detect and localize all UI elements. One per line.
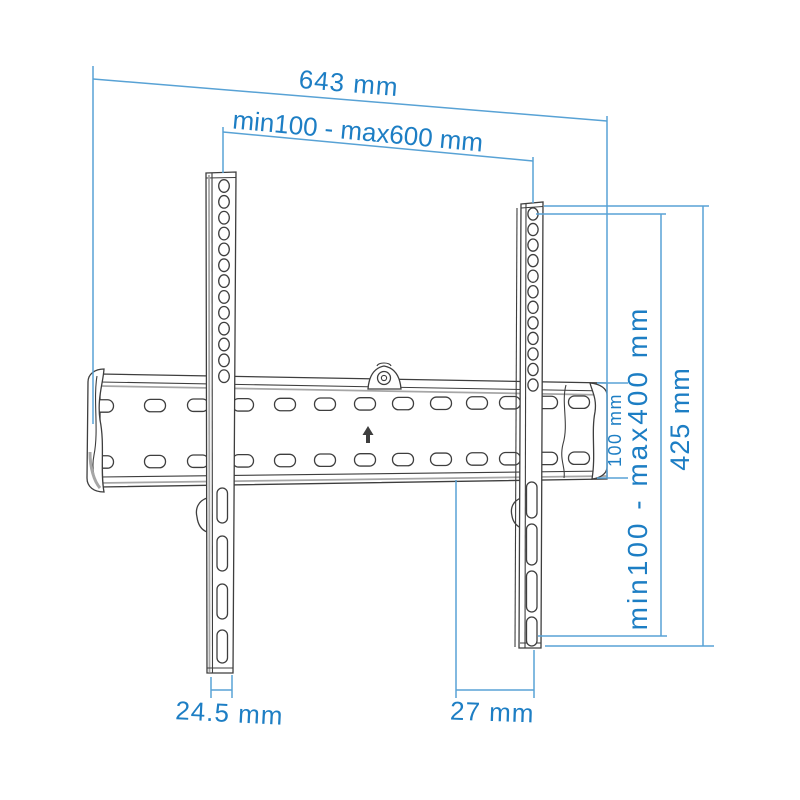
rail-slot	[431, 453, 452, 465]
vesa-hole	[528, 363, 538, 375]
left-arm-hook	[196, 498, 207, 532]
vesa-hole	[528, 379, 538, 391]
overall-height-label: 425 mm	[665, 367, 695, 471]
vesa-hole	[528, 239, 538, 251]
vesa-hole	[528, 223, 538, 235]
rail-slot	[145, 455, 166, 467]
spirit-level-icon	[368, 363, 401, 389]
vesa-hole	[219, 322, 230, 335]
arm-width-label: 24.5 mm	[175, 695, 285, 731]
vesa-hole	[219, 180, 230, 193]
arm-slot	[527, 524, 538, 565]
right-vesa-arm	[511, 202, 543, 648]
rail-slot	[393, 397, 414, 409]
rail-slot	[233, 399, 254, 411]
vesa-hole	[219, 243, 230, 256]
rail-slot	[569, 396, 590, 408]
rail-slot	[431, 397, 452, 409]
vesa-hole	[219, 196, 230, 209]
dimension-vesa-width: min100 - max600 mm	[223, 104, 533, 203]
arm-slot	[527, 571, 538, 612]
vesa-height-label: min100 - max400 mm	[622, 306, 653, 631]
rail-slot	[355, 454, 376, 466]
arm-slot	[527, 617, 538, 646]
left-arm-shading	[209, 175, 210, 672]
rail-slot	[315, 398, 336, 410]
rail-slot	[355, 398, 376, 410]
dimension-arm-width: 24.5 mm	[175, 675, 285, 731]
rail-slot	[500, 453, 521, 465]
vesa-hole	[219, 275, 230, 288]
right-arm-slots	[527, 482, 538, 646]
arm-offset-label: 27 mm	[450, 696, 535, 729]
rail-slot	[275, 454, 296, 466]
arm-slot	[217, 584, 228, 619]
rail-slot	[315, 454, 336, 466]
rail-slot	[188, 455, 209, 467]
vesa-hole	[219, 211, 230, 224]
rail-height-label: 100 mm	[605, 393, 625, 467]
arm-slot	[217, 488, 228, 523]
wall-mount-diagram: 643 mm min100 - max600 mm 425 mm min100 …	[0, 0, 800, 800]
left-arm-top-edge	[206, 178, 236, 179]
arm-slot	[217, 630, 228, 663]
vesa-hole	[528, 301, 538, 313]
vesa-hole	[219, 370, 230, 383]
vesa-hole	[528, 348, 538, 360]
vesa-hole	[219, 259, 230, 272]
rail-slot	[393, 453, 414, 465]
rail-slot	[500, 397, 521, 409]
vesa-hole	[528, 332, 538, 344]
arm-slot	[527, 482, 538, 518]
diagram-canvas: 643 mm min100 - max600 mm 425 mm min100 …	[0, 0, 800, 800]
rail-slot	[188, 399, 209, 411]
vesa-hole	[219, 307, 230, 320]
rail-slot	[467, 397, 488, 409]
rail-slot	[145, 399, 166, 411]
left-arm-inner-edge	[212, 173, 213, 673]
vesa-hole	[219, 338, 230, 351]
rail-slot	[467, 453, 488, 465]
vesa-hole	[528, 317, 538, 329]
vesa-hole	[219, 227, 230, 240]
vesa-hole	[219, 354, 230, 367]
arm-slot	[217, 536, 228, 571]
rail-slot	[275, 398, 296, 410]
rail-slot	[569, 452, 590, 464]
vesa-width-label: min100 - max600 mm	[231, 104, 484, 157]
rail-slot	[233, 455, 254, 467]
vesa-hole	[528, 270, 538, 282]
vesa-hole	[219, 291, 230, 304]
vesa-hole	[528, 286, 538, 298]
vesa-hole	[528, 255, 538, 267]
